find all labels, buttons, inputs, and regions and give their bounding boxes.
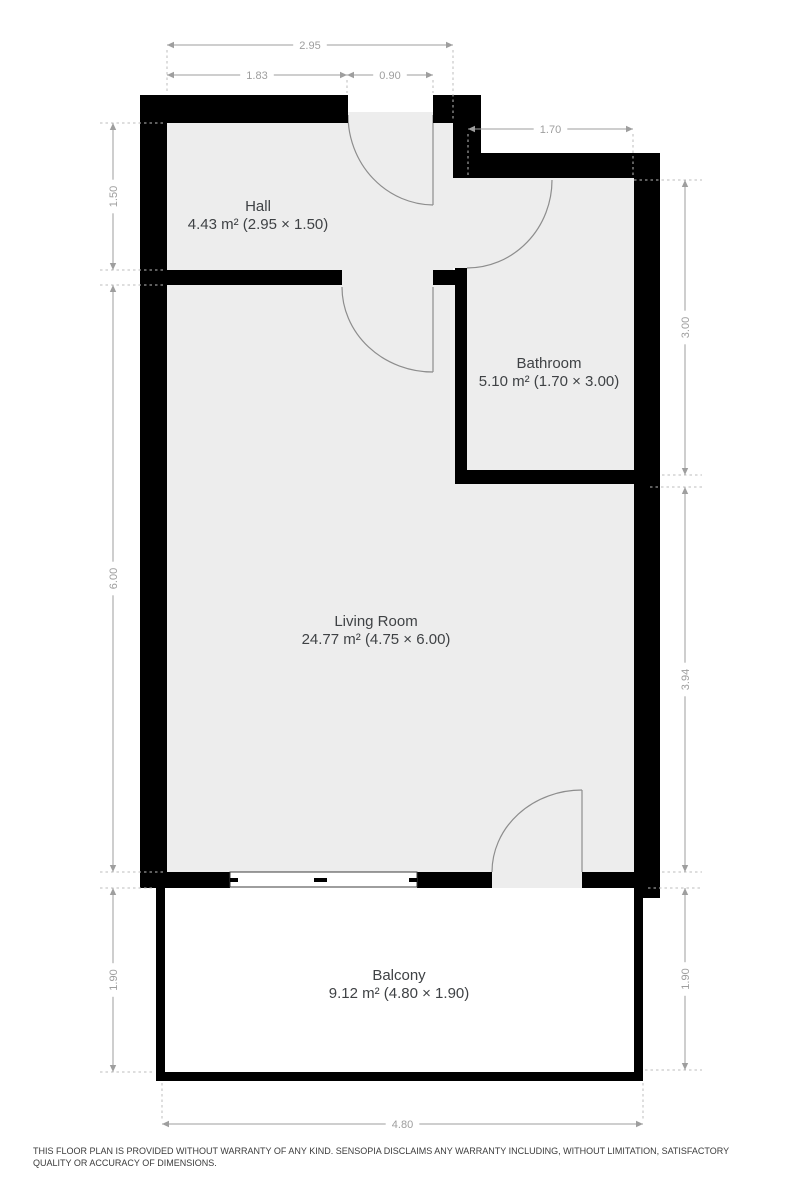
wall-bottom-2 (417, 872, 492, 888)
floor-hall (167, 123, 453, 872)
dimension-3-94-8-arrow-start (682, 487, 688, 494)
wall-top-right (433, 95, 481, 123)
wall-bathroom-bottom (455, 470, 660, 484)
dimension-1-90-9-label-group: 1.90 (679, 962, 692, 996)
dimension-1-50-4-label-group: 1.50 (107, 180, 120, 214)
room-area-balcony: 9.12 m² (4.80 × 1.90) (329, 985, 470, 1002)
wall-bathroom-top (453, 153, 660, 178)
dimension-1-83-1-arrow-start (167, 72, 174, 78)
floor-entry-threshold (348, 112, 433, 123)
window-tick-2 (409, 878, 417, 882)
dimension-3-00-7-label: 3.00 (680, 317, 692, 338)
wall-left (140, 95, 167, 885)
dimension-1-70-3-label: 1.70 (540, 124, 561, 136)
wall-balcony-right (634, 898, 643, 1081)
wall-bottom-3 (582, 872, 660, 888)
dimension-4-80-10-arrow-end (636, 1121, 643, 1127)
dimension-0-90-2-arrow-start (347, 72, 354, 78)
dimension-6-00-5-arrow-start (110, 285, 116, 292)
dimension-3-94-8-label: 3.94 (680, 669, 692, 690)
wall-right (634, 153, 660, 898)
dimension-3-00-7-arrow-start (682, 180, 688, 187)
dimension-3-00-7-label-group: 3.00 (679, 311, 692, 345)
dimension-1-50-4-arrow-start (110, 123, 116, 130)
disclaimer-text: THIS FLOOR PLAN IS PROVIDED WITHOUT WARR… (33, 1146, 765, 1169)
floor-plan-page: 2.951.830.901.701.506.001.903.003.941.90… (0, 0, 800, 1200)
dimension-3-00-7-arrow-end (682, 468, 688, 475)
room-label-hall: Hall (245, 198, 271, 215)
room-label-bathroom: Bathroom (516, 355, 581, 372)
dimension-1-90-9-arrow-start (682, 888, 688, 895)
wall-bathroom-left (455, 268, 467, 484)
room-area-bathroom: 5.10 m² (1.70 × 3.00) (479, 373, 620, 390)
window-tick-1 (314, 878, 327, 882)
dimension-1-90-9-arrow-end (682, 1063, 688, 1070)
dimension-2-95-0-arrow-start (167, 42, 174, 48)
dimension-1-90-6-label-group: 1.90 (107, 963, 120, 997)
dimension-1-90-6-arrow-end (110, 1065, 116, 1072)
dimension-1-50-4-arrow-end (110, 263, 116, 270)
dimension-1-90-6-label: 1.90 (108, 969, 120, 990)
dimension-3-94-8-arrow-end (682, 865, 688, 872)
dimension-2-95-0-arrow-end (446, 42, 453, 48)
dimension-4-80-10-label: 4.80 (392, 1119, 413, 1131)
dimension-1-70-3-arrow-end (626, 126, 633, 132)
floor-balcony-doorway (492, 872, 582, 888)
room-label-living-room: Living Room (334, 613, 417, 630)
room-area-hall: 4.43 m² (2.95 × 1.50) (188, 216, 329, 233)
window-tick-0 (230, 878, 238, 882)
wall-balcony-bottom (156, 1072, 643, 1081)
dimension-1-83-1-label: 1.83 (246, 70, 267, 82)
wall-hall-divider (167, 270, 342, 285)
dimension-1-83-1-arrow-end (340, 72, 347, 78)
wall-bottom-1 (140, 872, 230, 888)
floor-plan: 2.951.830.901.701.506.001.903.003.941.90… (0, 0, 800, 1200)
dimension-2-95-0-label: 2.95 (299, 40, 320, 52)
dimension-1-90-9-label: 1.90 (680, 968, 692, 989)
dimension-3-94-8-label-group: 3.94 (679, 663, 692, 697)
dimension-1-50-4-label: 1.50 (108, 186, 120, 207)
dimension-0-90-2-label: 0.90 (379, 70, 400, 82)
room-label-balcony: Balcony (372, 967, 426, 984)
wall-top-left (140, 95, 348, 123)
dimension-4-80-10-arrow-start (162, 1121, 169, 1127)
floor-bathroom (467, 178, 634, 470)
dimension-6-00-5-label: 6.00 (108, 568, 120, 589)
dimension-6-00-5-arrow-end (110, 865, 116, 872)
dimension-1-90-6-arrow-start (110, 888, 116, 895)
floor-bathroom-doorway (453, 178, 467, 268)
dimension-6-00-5-label-group: 6.00 (107, 562, 120, 596)
dimension-0-90-2-arrow-end (426, 72, 433, 78)
wall-balcony-left (156, 885, 165, 1081)
room-area-living-room: 24.77 m² (4.75 × 6.00) (302, 631, 451, 648)
